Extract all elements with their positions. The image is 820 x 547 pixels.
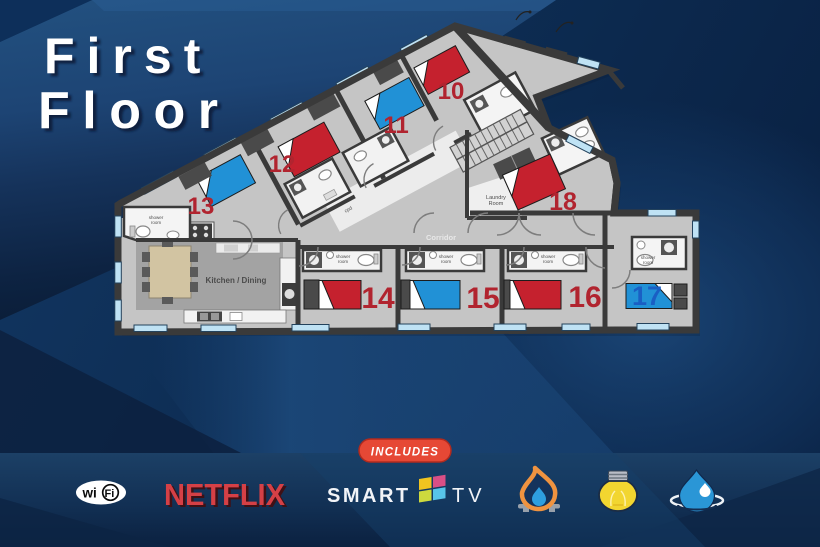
svg-text:NETFLIX: NETFLIX (164, 477, 285, 512)
svg-text:Floor: Floor (38, 82, 230, 140)
svg-text:room: room (441, 259, 452, 264)
svg-text:room: room (338, 259, 349, 264)
svg-text:SMART: SMART (327, 485, 411, 507)
svg-text:13: 13 (188, 193, 215, 220)
svg-text:room: room (151, 220, 162, 225)
svg-text:Kitchen / Dining: Kitchen / Dining (206, 276, 267, 285)
svg-text:15: 15 (466, 282, 499, 315)
svg-text:Fi: Fi (105, 488, 115, 500)
svg-text:14: 14 (361, 282, 395, 315)
svg-text:INCLUDES: INCLUDES (371, 447, 439, 459)
svg-text:TV: TV (452, 485, 486, 507)
svg-text:10: 10 (438, 78, 465, 105)
svg-text:Room: Room (489, 201, 504, 207)
svg-text:17: 17 (632, 281, 662, 311)
svg-text:wi: wi (82, 486, 97, 501)
svg-text:16: 16 (568, 281, 601, 314)
svg-text:First: First (44, 28, 212, 84)
svg-text:room: room (543, 259, 554, 264)
svg-text:11: 11 (383, 112, 408, 139)
svg-text:18: 18 (549, 188, 577, 216)
svg-text:Corridor: Corridor (426, 233, 456, 242)
svg-text:room: room (643, 260, 654, 265)
svg-text:12: 12 (269, 151, 296, 178)
